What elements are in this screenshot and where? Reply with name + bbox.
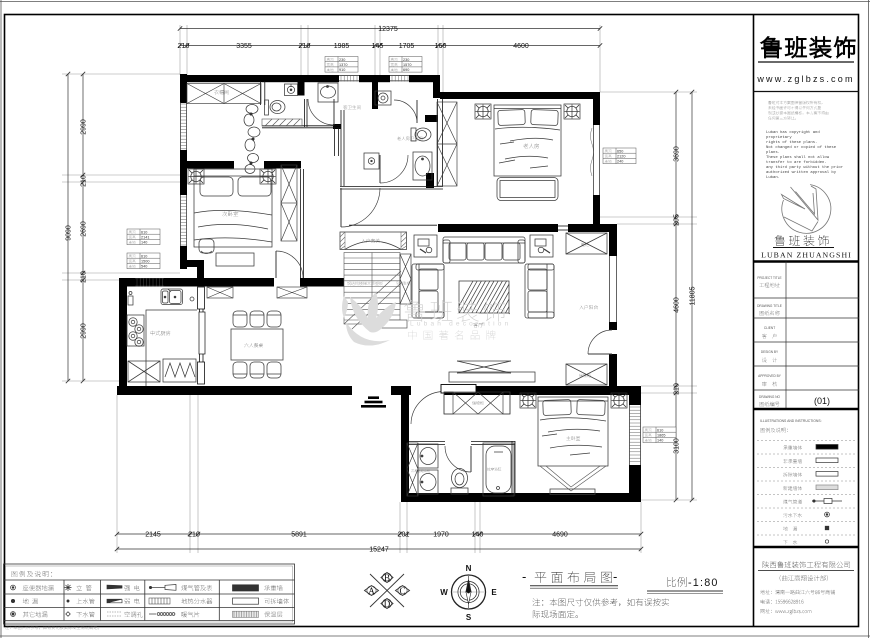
svg-text:Luban decoration: Luban decoration xyxy=(410,321,511,328)
svg-text:2690: 2690 xyxy=(81,221,88,237)
svg-text:1370: 1370 xyxy=(339,63,347,67)
svg-text:any third party without the pr: any third party without the prior xyxy=(766,165,843,170)
svg-text:N: N xyxy=(466,564,472,573)
svg-text:DRAWING TITLE: DRAWING TITLE xyxy=(757,304,782,308)
svg-text:690: 690 xyxy=(403,68,409,72)
svg-text:210: 210 xyxy=(81,175,88,187)
svg-text:CLIENT: CLIENT xyxy=(764,326,775,330)
svg-text:1970: 1970 xyxy=(433,532,449,539)
svg-text:15247: 15247 xyxy=(369,547,389,554)
svg-text:B: B xyxy=(384,573,390,583)
svg-text:-: - xyxy=(522,569,526,584)
svg-text:140: 140 xyxy=(472,532,484,539)
svg-text:Luban.: Luban. xyxy=(766,175,780,180)
svg-text:ILLUSTRATIONS AND INSTRUCTIONS: ILLUSTRATIONS AND INSTRUCTIONS: xyxy=(760,419,822,423)
svg-text:145: 145 xyxy=(372,43,384,50)
svg-text:authorized written approval by: authorized written approval by xyxy=(766,170,837,175)
svg-text:210: 210 xyxy=(188,532,200,539)
svg-text:LUBAN ZHUANGSHI: LUBAN ZHUANGSHI xyxy=(761,251,852,260)
svg-text:540: 540 xyxy=(141,265,147,269)
svg-text:201: 201 xyxy=(398,532,410,539)
svg-text:140: 140 xyxy=(657,439,663,443)
svg-text:210: 210 xyxy=(299,43,311,50)
svg-text:PROJECT TITLE: PROJECT TITLE xyxy=(757,276,781,280)
svg-text:2145: 2145 xyxy=(145,532,161,539)
svg-text:210: 210 xyxy=(81,271,88,283)
svg-text:910: 910 xyxy=(339,68,345,72)
svg-text:APPROVED BY: APPROVED BY xyxy=(758,374,782,378)
svg-text:230: 230 xyxy=(339,58,345,62)
svg-text:2990: 2990 xyxy=(81,323,88,339)
svg-text:610: 610 xyxy=(141,254,147,258)
svg-text:-1:80: -1:80 xyxy=(688,577,719,589)
svg-text:plans.: plans. xyxy=(766,150,780,155)
svg-text:4600: 4600 xyxy=(674,297,681,313)
svg-text:rights of these plans.: rights of these plans. xyxy=(766,140,817,145)
svg-text:1985: 1985 xyxy=(334,43,350,50)
svg-text:-: - xyxy=(613,569,617,584)
svg-text:2120: 2120 xyxy=(617,155,625,159)
svg-text:3355: 3355 xyxy=(236,43,252,50)
svg-text:A: A xyxy=(368,586,375,596)
svg-text:9090: 9090 xyxy=(66,225,73,241)
svg-text:610: 610 xyxy=(141,230,147,234)
svg-text:5891: 5891 xyxy=(291,532,307,539)
svg-text:12375: 12375 xyxy=(378,26,398,33)
svg-text:DRAWING NO: DRAWING NO xyxy=(759,395,780,399)
svg-text:240: 240 xyxy=(617,160,623,164)
svg-text:proprietary: proprietary xyxy=(766,135,792,140)
svg-text:D: D xyxy=(384,599,391,609)
svg-text:650: 650 xyxy=(617,149,623,153)
svg-text:E: E xyxy=(491,588,497,597)
svg-text:3100: 3100 xyxy=(674,438,681,454)
svg-text:210: 210 xyxy=(178,43,190,50)
svg-text:140: 140 xyxy=(141,241,147,245)
svg-text:DESIGN BY: DESIGN BY xyxy=(761,350,779,354)
svg-text:2990: 2990 xyxy=(81,119,88,135)
svg-text:1570: 1570 xyxy=(403,63,411,67)
svg-text:transfer to are forbidden.: transfer to are forbidden. xyxy=(766,160,827,165)
svg-text:4690: 4690 xyxy=(552,532,568,539)
svg-text:230: 230 xyxy=(403,58,409,62)
svg-text:Not changed or copied of these: Not changed or copied of these xyxy=(766,145,837,150)
svg-text:2141: 2141 xyxy=(141,236,149,240)
svg-text:1705: 1705 xyxy=(399,43,415,50)
svg-text:205: 205 xyxy=(674,214,681,226)
svg-text:C: C xyxy=(399,586,405,596)
svg-text:210: 210 xyxy=(674,383,681,395)
svg-text:1865: 1865 xyxy=(657,434,665,438)
svg-text:S: S xyxy=(466,613,472,622)
svg-text:(01): (01) xyxy=(814,396,830,406)
svg-text:1500: 1500 xyxy=(141,260,149,264)
svg-text:11805: 11805 xyxy=(690,286,697,305)
svg-text:160: 160 xyxy=(435,43,447,50)
svg-text:4600: 4600 xyxy=(513,43,529,50)
svg-text:3690: 3690 xyxy=(674,146,681,162)
svg-text:610: 610 xyxy=(657,428,663,432)
svg-text:W: W xyxy=(440,588,448,597)
svg-text:www.zglbzs.com: www.zglbzs.com xyxy=(756,74,854,84)
svg-text:Luban has copyright and: Luban has copyright and xyxy=(766,130,820,135)
svg-text:These plans shall not allow: These plans shall not allow xyxy=(766,155,830,160)
